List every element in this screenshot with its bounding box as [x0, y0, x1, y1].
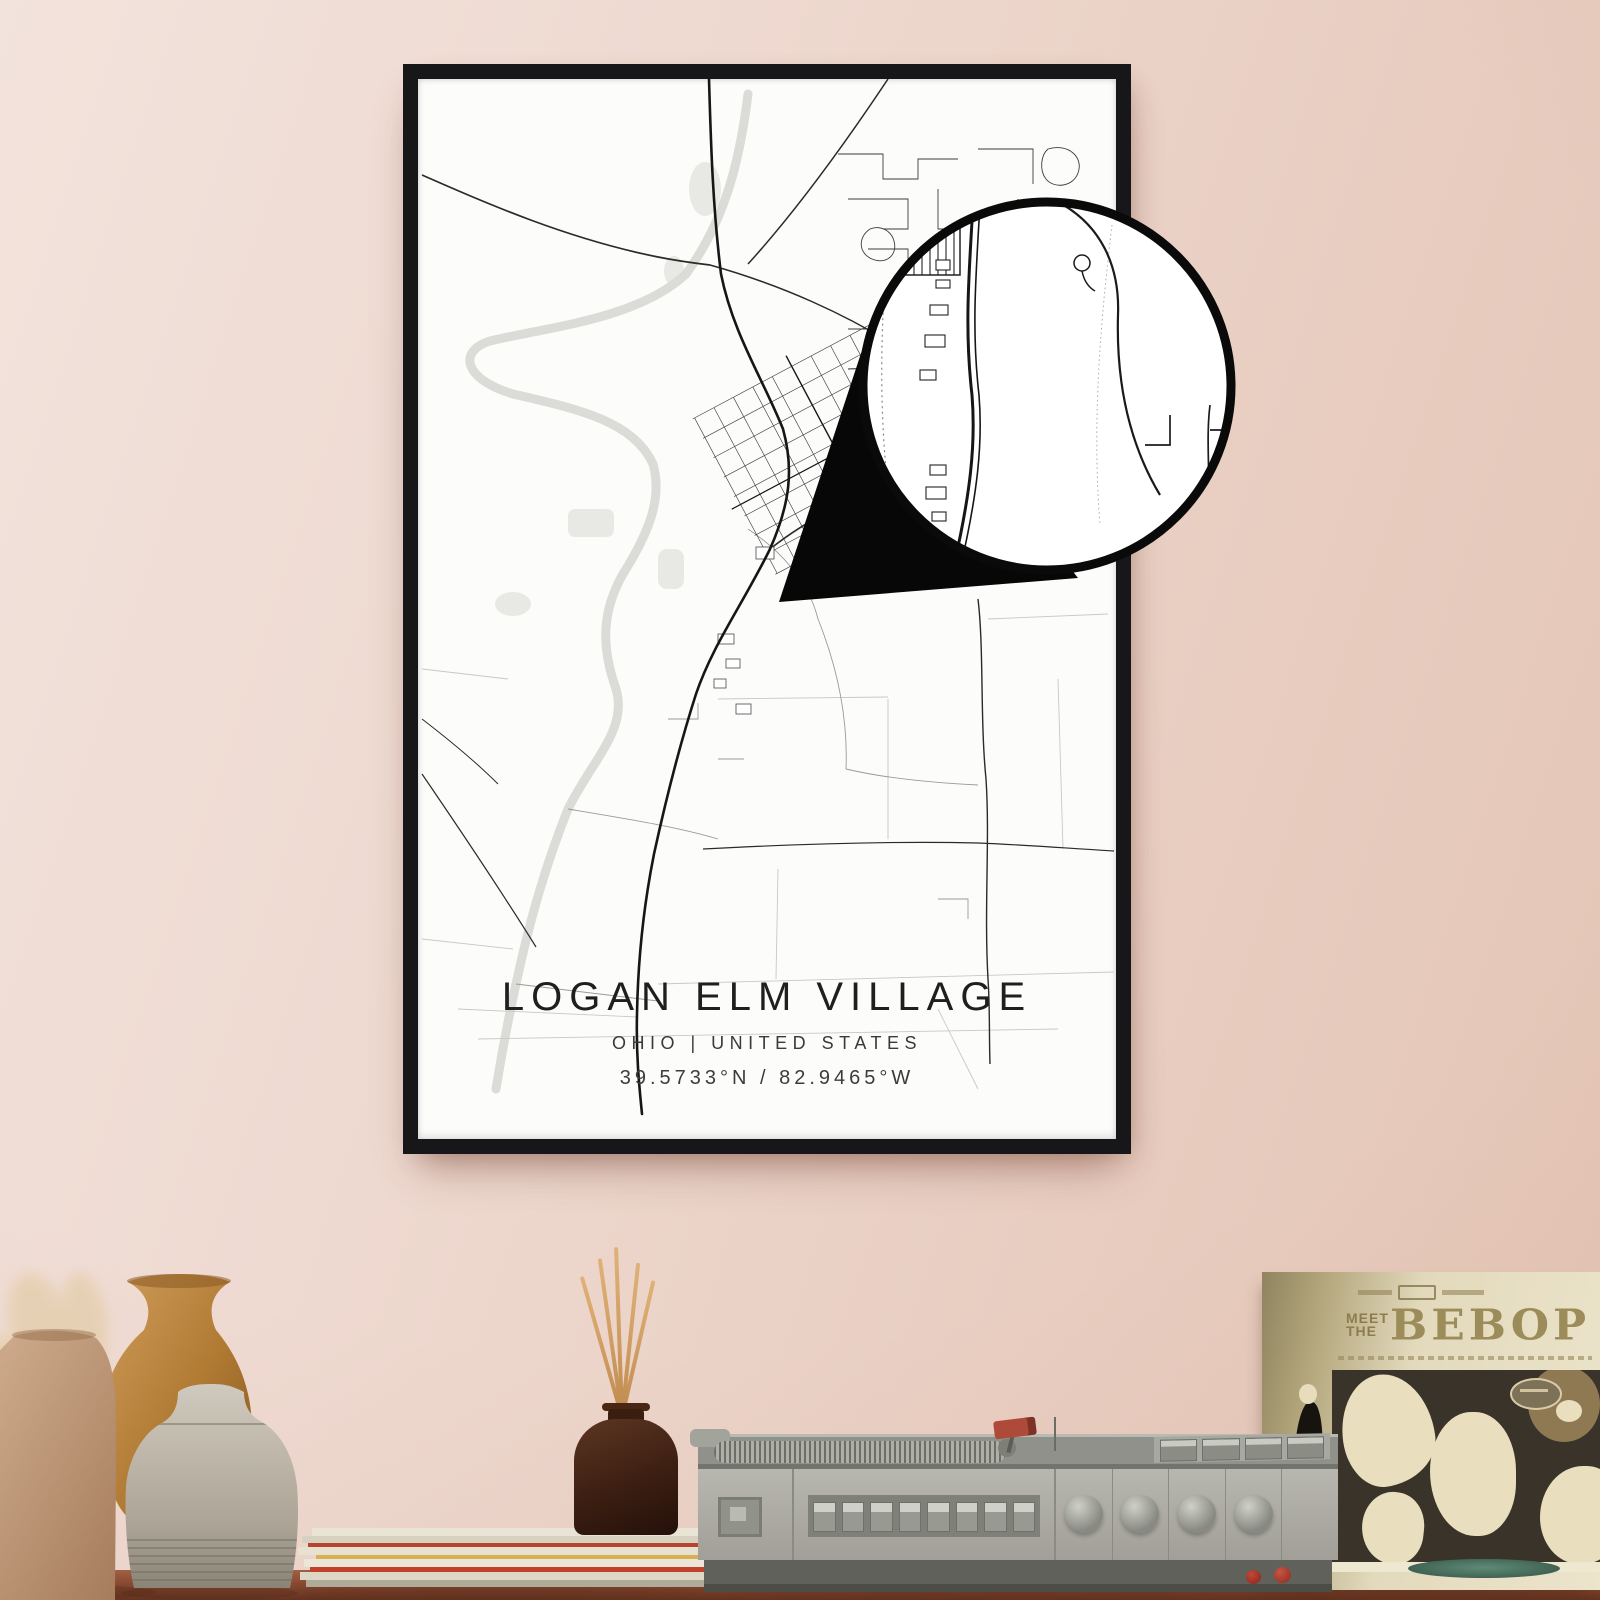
preset-button [813, 1502, 836, 1532]
magazine [302, 1536, 706, 1543]
deck-key [1202, 1438, 1239, 1461]
treble-knob [1235, 1495, 1273, 1533]
magazine-stack [298, 1528, 710, 1592]
sleeve-title-prefix: MEET THE [1346, 1312, 1389, 1338]
cartoon-face [1358, 1489, 1427, 1566]
poster-region-line: OHIO | UNITED STATES [418, 1033, 1116, 1054]
room-scene: LOGAN ELM VILLAGE OHIO | UNITED STATES 3… [0, 0, 1600, 1600]
diffuser-reed [620, 1280, 655, 1417]
red-berry [1274, 1567, 1291, 1583]
front-section-presets [794, 1469, 1056, 1560]
record-player-deck [698, 1434, 1338, 1467]
ceramic-vases [0, 1272, 312, 1600]
sleeve-smallprint [1358, 1286, 1528, 1298]
vintage-record-player [698, 1408, 1338, 1592]
deck-key [1160, 1439, 1197, 1462]
balance-knob [1121, 1495, 1159, 1533]
green-vinyl-record [1408, 1559, 1560, 1578]
preset-button [870, 1502, 893, 1532]
preset-button [1013, 1502, 1036, 1532]
volume-knob [1065, 1495, 1103, 1533]
preset-button-bar [808, 1495, 1040, 1537]
sleeve-photo-panel [1332, 1370, 1600, 1566]
deck-key [1245, 1437, 1282, 1460]
deck-key [1287, 1436, 1324, 1459]
sax-player-head [1299, 1384, 1317, 1404]
sleeve-title-main: BEBOP [1390, 1301, 1590, 1349]
knob-cell [1113, 1469, 1170, 1560]
tonearm-cartridge [993, 1417, 1037, 1440]
reed-diffuser [556, 1290, 696, 1535]
tan-vase [0, 1331, 116, 1600]
cartoon-face [1430, 1412, 1516, 1536]
front-section-power [698, 1469, 794, 1560]
diffuser-bottle [574, 1419, 678, 1535]
deck-key-panel [1154, 1433, 1330, 1463]
preset-button [842, 1502, 865, 1532]
zoom-magnifier [740, 165, 1260, 640]
smallprint-bar [1442, 1290, 1484, 1295]
preset-button [927, 1502, 950, 1532]
knob-cell [1056, 1469, 1113, 1560]
knob-cell [1226, 1469, 1283, 1560]
red-berry [1246, 1570, 1261, 1584]
poster-text-block: LOGAN ELM VILLAGE OHIO | UNITED STATES 3… [418, 975, 1116, 1090]
magazine [300, 1572, 708, 1580]
turntable-platter [714, 1441, 1006, 1463]
power-button [718, 1497, 762, 1537]
record-player-base [704, 1560, 1332, 1586]
front-section-blank [1282, 1469, 1338, 1560]
cartoon-face [1540, 1466, 1600, 1564]
map-river [470, 94, 748, 1089]
sleeve-word-the: THE [1346, 1325, 1389, 1338]
record-label-mark [1398, 1285, 1436, 1300]
dog-snout [1556, 1400, 1582, 1422]
record-player-front [698, 1464, 1338, 1560]
smallprint-bar [1358, 1290, 1392, 1295]
poster-title: LOGAN ELM VILLAGE [418, 975, 1116, 1020]
magazine [304, 1559, 706, 1567]
preset-button [984, 1502, 1007, 1532]
record-label-logo [1510, 1378, 1562, 1410]
sleeve-credits-row [1338, 1356, 1592, 1360]
magazine [306, 1580, 704, 1587]
antenna [1054, 1417, 1056, 1451]
bass-knob [1178, 1495, 1216, 1533]
poster-coordinates: 39.5733°N / 82.9465°W [418, 1067, 1116, 1090]
cartoon-face [1335, 1370, 1442, 1492]
preset-button [899, 1502, 922, 1532]
preset-button [956, 1502, 979, 1532]
map-parks [495, 162, 721, 616]
knob-cell [1169, 1469, 1226, 1560]
magazine [298, 1547, 708, 1555]
